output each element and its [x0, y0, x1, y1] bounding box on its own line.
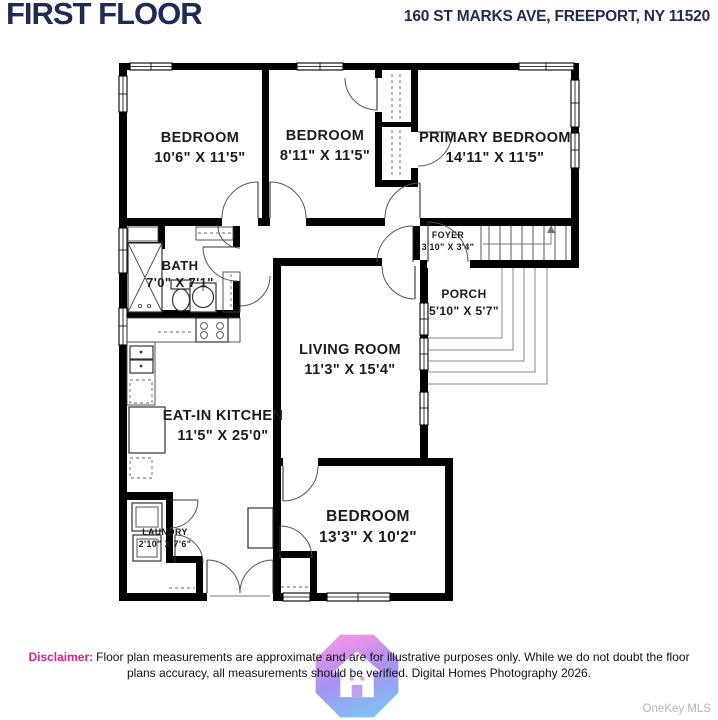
- room-dimensions: 11'3" X 15'4": [275, 360, 425, 380]
- room-label-bedroom-2: BEDROOM 8'11" X 11'5": [250, 126, 400, 166]
- room-name: BEDROOM: [250, 126, 400, 146]
- room-name: BEDROOM: [283, 506, 453, 527]
- cabinet: [130, 458, 152, 478]
- room-name: BATH: [130, 257, 230, 274]
- room-dimensions: 3'10" X 3'4": [408, 241, 488, 253]
- room-dimensions: 8'11" X 11'5": [250, 146, 400, 166]
- room-dimensions: 14'11" X 11'5": [405, 148, 585, 168]
- room-label-porch: PORCH 5'10" X 5'7": [404, 286, 524, 319]
- window-top-bedroom1: [130, 63, 172, 70]
- stove: [196, 318, 228, 342]
- window-bottom-closet: [283, 593, 310, 601]
- room-dimensions: 7'0" X 7'1": [130, 274, 230, 291]
- kitchen-bench: [248, 508, 273, 548]
- room-dimensions: 5'10" X 5'7": [404, 303, 524, 320]
- window-bottom-bedroom3: [327, 593, 390, 601]
- room-name: PRIMARY BEDROOM: [405, 128, 585, 148]
- window-porch-3: [420, 392, 428, 425]
- staircase: [481, 225, 566, 260]
- room-label-bath: BATH 7'0" X 7'1": [130, 257, 230, 291]
- room-name: EAT-IN KITCHEN: [138, 406, 308, 426]
- disclaimer-label: Disclaimer:: [28, 650, 93, 664]
- room-dimensions: 13'3" X 10'2": [283, 527, 453, 548]
- stairs-up-arrow: [547, 225, 555, 233]
- window-top-primary: [519, 63, 574, 70]
- window-right-primary-1: [571, 80, 579, 127]
- mls-watermark: OneKey MLS: [643, 703, 711, 715]
- window-left-kitchen: [119, 308, 127, 345]
- house-door: [352, 685, 363, 697]
- room-label-primary-bedroom: PRIMARY BEDROOM 14'11" X 11'5": [405, 128, 585, 168]
- room-name: LAUNDRY: [120, 526, 210, 538]
- floor-plan-page: FIRST FLOOR 160 ST MARKS AVE, FREEPORT, …: [0, 0, 718, 720]
- window-top-bedroom2: [297, 63, 343, 70]
- disclaimer-text: Floor plan measurements are approximate …: [96, 650, 689, 680]
- window-left-bedroom1: [119, 76, 127, 112]
- disclaimer: Disclaimer:Floor plan measurements are a…: [0, 650, 718, 681]
- room-label-foyer: FOYER 3'10" X 3'4": [408, 229, 488, 253]
- room-name: PORCH: [404, 286, 524, 303]
- room-name: FOYER: [408, 229, 488, 241]
- kitchen-sink: [130, 346, 153, 373]
- room-dimensions: 2'10" X 7'6": [120, 538, 210, 550]
- room-label-bedroom-3: BEDROOM 13'3" X 10'2": [283, 506, 453, 548]
- room-label-eat-in-kitchen: EAT-IN KITCHEN 11'5" X 25'0": [138, 406, 308, 446]
- window-left-bath: [119, 228, 127, 273]
- room-name: LIVING ROOM: [275, 340, 425, 360]
- room-label-living-room: LIVING ROOM 11'3" X 15'4": [275, 340, 425, 380]
- room-label-laundry: LAUNDRY 2'10" X 7'6": [120, 526, 210, 550]
- room-dimensions: 11'5" X 25'0": [138, 426, 308, 446]
